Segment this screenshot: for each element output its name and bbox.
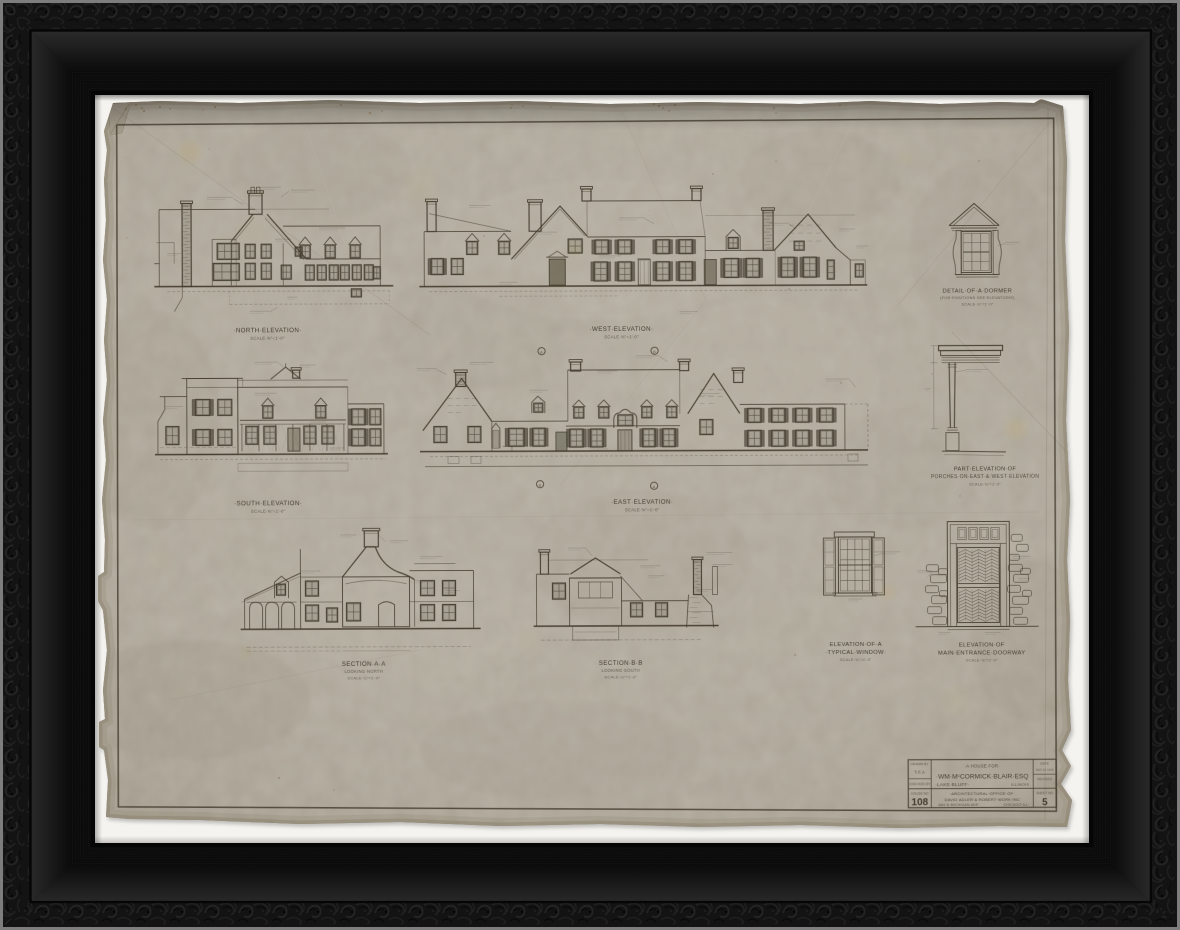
svg-text:SCALE·¾"=1'-0": SCALE·¾"=1'-0": [969, 481, 1001, 486]
svg-text:CHECKED BY: CHECKED BY: [909, 782, 931, 786]
svg-text:DETAIL·OF·A·DORMER: DETAIL·OF·A·DORMER: [943, 288, 1013, 294]
svg-text:ELEVATION·OF·A: ELEVATION·OF·A: [830, 642, 882, 648]
svg-text:·TYPICAL·WINDOW·: ·TYPICAL·WINDOW·: [825, 650, 886, 656]
svg-text:SCALE·⅜"=1'-0": SCALE·⅜"=1'-0": [251, 509, 286, 514]
svg-text:SHEET NO: SHEET NO: [1036, 791, 1053, 795]
svg-text:B: B: [653, 349, 656, 354]
svg-text:A: A: [653, 484, 656, 489]
svg-text:·LAKE·BLUFF·: ·LAKE·BLUFF·: [935, 782, 969, 787]
svg-text:HOUSE NO: HOUSE NO: [911, 792, 929, 796]
svg-text:CHICAGO·ILL·: CHICAGO·ILL·: [1003, 803, 1029, 807]
svg-text:·A·HOUSE·FOR·: ·A·HOUSE·FOR·: [964, 763, 999, 768]
svg-text:DATE: DATE: [1040, 762, 1050, 766]
svg-text:·WM·McCORMICK·BLAIR·ESQ: ·WM·McCORMICK·BLAIR·ESQ: [936, 773, 1029, 780]
svg-text:SEP·15·1926: SEP·15·1926: [1036, 768, 1054, 772]
svg-text:SCALE·¾"=1'-0": SCALE·¾"=1'-0": [840, 657, 872, 662]
svg-text:ILLINOIS: ILLINOIS: [1011, 782, 1029, 787]
svg-text:REVISED: REVISED: [1037, 777, 1052, 781]
svg-text:PORCHES·ON·EAST·&·WEST·ELEVATI: PORCHES·ON·EAST·&·WEST·ELEVATION: [931, 474, 1039, 480]
svg-text:·WEST·ELEVATION·: ·WEST·ELEVATION·: [590, 326, 654, 333]
svg-text:DRAWN BY: DRAWN BY: [911, 762, 930, 766]
svg-text:DAVID·ADLER·&·ROBERT·WORK·INC: DAVID·ADLER·&·ROBERT·WORK·INC: [945, 797, 1020, 802]
svg-text:(FOR·POSITIONS·SEE·ELEVATIONS): (FOR·POSITIONS·SEE·ELEVATIONS): [940, 295, 1015, 300]
svg-text:·NORTH·ELEVATION·: ·NORTH·ELEVATION·: [233, 327, 301, 334]
svg-text:SCALE·¼"=1'-0": SCALE·¼"=1'-0": [347, 675, 380, 680]
svg-text:5: 5: [1042, 797, 1048, 808]
svg-text:MAIN·ENTRANCE·DOORWAY: MAIN·ENTRANCE·DOORWAY: [938, 650, 1025, 656]
svg-text:SCALE·¾"=1'-0": SCALE·¾"=1'-0": [961, 301, 993, 306]
svg-text:SECTION·A·A: SECTION·A·A: [342, 661, 386, 668]
svg-text:SCALE·⅜"=1'-0": SCALE·⅜"=1'-0": [250, 336, 285, 341]
svg-text:·SOUTH·ELEVATION·: ·SOUTH·ELEVATION·: [234, 500, 302, 507]
svg-text:SCALE·¾"=1'-0": SCALE·¾"=1'-0": [966, 657, 998, 662]
svg-text:T.F.A: T.F.A: [914, 770, 925, 775]
svg-text:108: 108: [911, 797, 928, 808]
svg-text:A: A: [540, 349, 543, 354]
svg-text:B: B: [539, 482, 542, 487]
svg-text:PART·ELEVATION·OF: PART·ELEVATION·OF: [954, 466, 1016, 472]
svg-text:SECTION·B·B: SECTION·B·B: [599, 660, 643, 667]
svg-text:SCALE·⅜"=1'-0": SCALE·⅜"=1'-0": [625, 507, 660, 512]
svg-text:·ARCHITECTURAL·OFFICE·OF·: ·ARCHITECTURAL·OFFICE·OF·: [950, 791, 1015, 796]
svg-text:ELEVATION·OF: ELEVATION·OF: [959, 642, 1005, 648]
svg-text:·EAST·ELEVATION·: ·EAST·ELEVATION·: [611, 499, 673, 506]
svg-text:LOOKING·SOUTH: LOOKING·SOUTH: [602, 668, 640, 673]
svg-text:·664·N·MICHIGAN·AVE·: ·664·N·MICHIGAN·AVE·: [937, 803, 979, 807]
svg-text:LOOKING·NORTH: LOOKING·NORTH: [345, 669, 384, 674]
svg-text:SCALE·¼"=1'-0": SCALE·¼"=1'-0": [604, 674, 637, 679]
svg-text:SCALE·⅜"=1'-0": SCALE·⅜"=1'-0": [604, 334, 639, 339]
